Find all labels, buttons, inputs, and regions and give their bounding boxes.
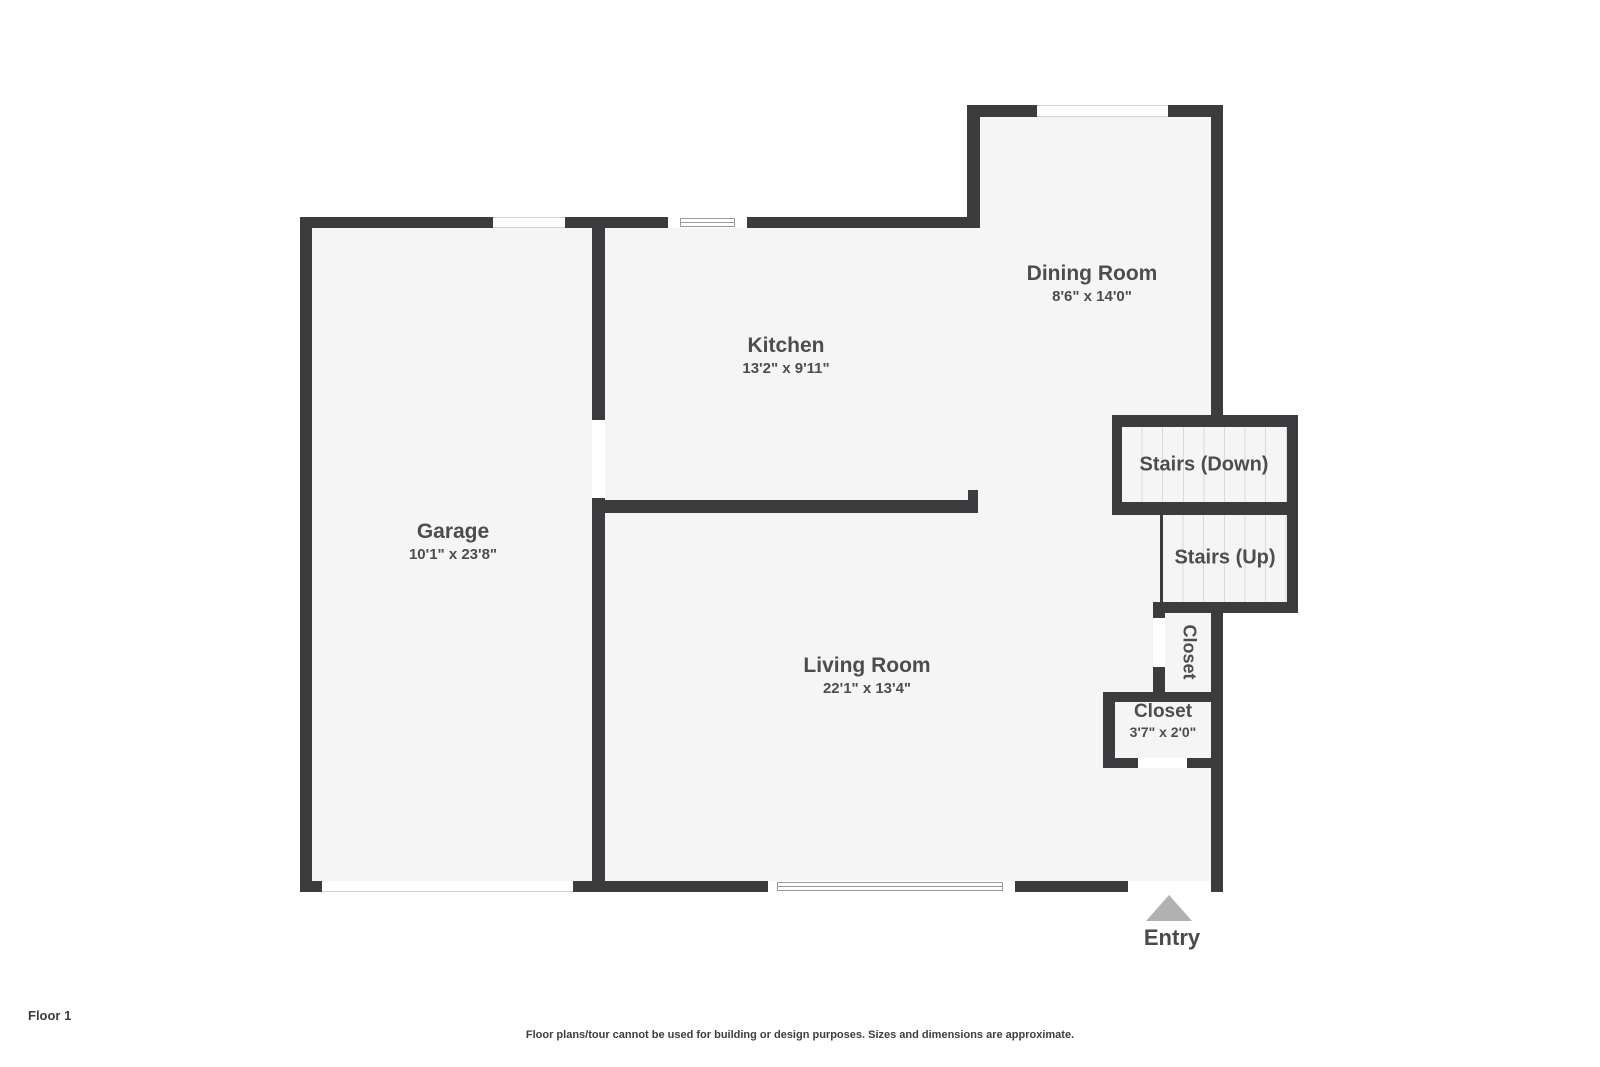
dining-dims: 8'6" x 14'0"	[1027, 286, 1158, 307]
garage-dims: 10'1" x 23'8"	[409, 544, 497, 565]
disclaimer-text: Floor plans/tour cannot be used for buil…	[0, 1029, 1600, 1041]
garage-label: Garage 10'1" x 23'8"	[409, 519, 497, 565]
dining-floor	[973, 110, 1216, 230]
garage-kitchen-wall	[592, 228, 605, 420]
stairs-up-label: Stairs (Up)	[1174, 547, 1275, 570]
kitchen-living-wall	[592, 500, 978, 513]
stairs-top-wall	[1112, 415, 1298, 427]
dining-top-wall-a	[967, 105, 1037, 117]
garage-door-opening	[322, 881, 573, 892]
living-name: Living Room	[803, 653, 930, 678]
stairs-left-wall	[1112, 415, 1122, 515]
closet-entry-left-wall	[1103, 692, 1115, 768]
garage-kitchen-door	[592, 420, 605, 498]
dining-label: Dining Room 8'6" x 14'0"	[1027, 261, 1158, 307]
garage-top-wall-a	[300, 217, 493, 228]
closet-hall-left-wall-b	[1153, 667, 1165, 692]
closet-hall-door	[1153, 618, 1165, 667]
garage-kitchen-top-wall	[565, 217, 668, 228]
entry-arrow-icon	[1146, 895, 1192, 921]
floor-plan: Garage 10'1" x 23'8" Kitchen 13'2" x 9'1…	[0, 0, 1600, 1067]
dining-left-wall	[967, 105, 980, 228]
kitchen-window	[680, 218, 735, 227]
garage-name: Garage	[409, 519, 497, 544]
stairs-up-left-wall	[1160, 515, 1163, 602]
closet-entry-dims: 3'7" x 2'0"	[1130, 723, 1197, 742]
stairs-down-label: Stairs (Down)	[1140, 454, 1269, 477]
closet-hall-label: Closet	[1179, 624, 1200, 679]
entry-label: Entry	[1144, 925, 1200, 951]
garage-window	[493, 217, 565, 228]
closet-entry-bottom-wall-b	[1187, 758, 1223, 768]
bottom-wall-c	[1015, 881, 1128, 892]
bottom-wall-b	[573, 881, 768, 892]
garage-living-wall	[592, 498, 605, 892]
kitchen-living-wall-cap	[968, 490, 978, 500]
kitchen-name: Kitchen	[742, 333, 829, 358]
closet-entry-door	[1138, 758, 1187, 768]
kitchen-window-opening	[668, 217, 747, 228]
bottom-wall-garage-corner	[300, 881, 322, 892]
dining-right-wall	[1211, 105, 1223, 415]
closet-entry-bottom-wall-a	[1103, 758, 1138, 768]
closet-entry-label: Closet 3'7" x 2'0"	[1130, 701, 1197, 742]
main-floor	[598, 222, 1216, 886]
kitchen-dims: 13'2" x 9'11"	[742, 358, 829, 379]
closet-entry-name: Closet	[1130, 701, 1197, 723]
kitchen-top-wall-b	[747, 217, 967, 228]
dining-window	[1037, 105, 1168, 117]
stairs-bottom-wall	[1153, 602, 1298, 613]
stairs-mid-wall	[1112, 502, 1298, 515]
right-wall-lower	[1211, 613, 1223, 892]
dining-name: Dining Room	[1027, 261, 1158, 286]
stairs-right-wall	[1287, 415, 1298, 613]
entry-opening	[1128, 881, 1210, 892]
garage-left-wall	[300, 217, 312, 892]
living-label: Living Room 22'1" x 13'4"	[803, 653, 930, 699]
kitchen-label: Kitchen 13'2" x 9'11"	[742, 333, 829, 379]
floor-number-label: Floor 1	[28, 1008, 71, 1023]
living-dims: 22'1" x 13'4"	[803, 678, 930, 699]
living-window	[777, 882, 1003, 891]
living-window-opening	[768, 881, 1015, 892]
